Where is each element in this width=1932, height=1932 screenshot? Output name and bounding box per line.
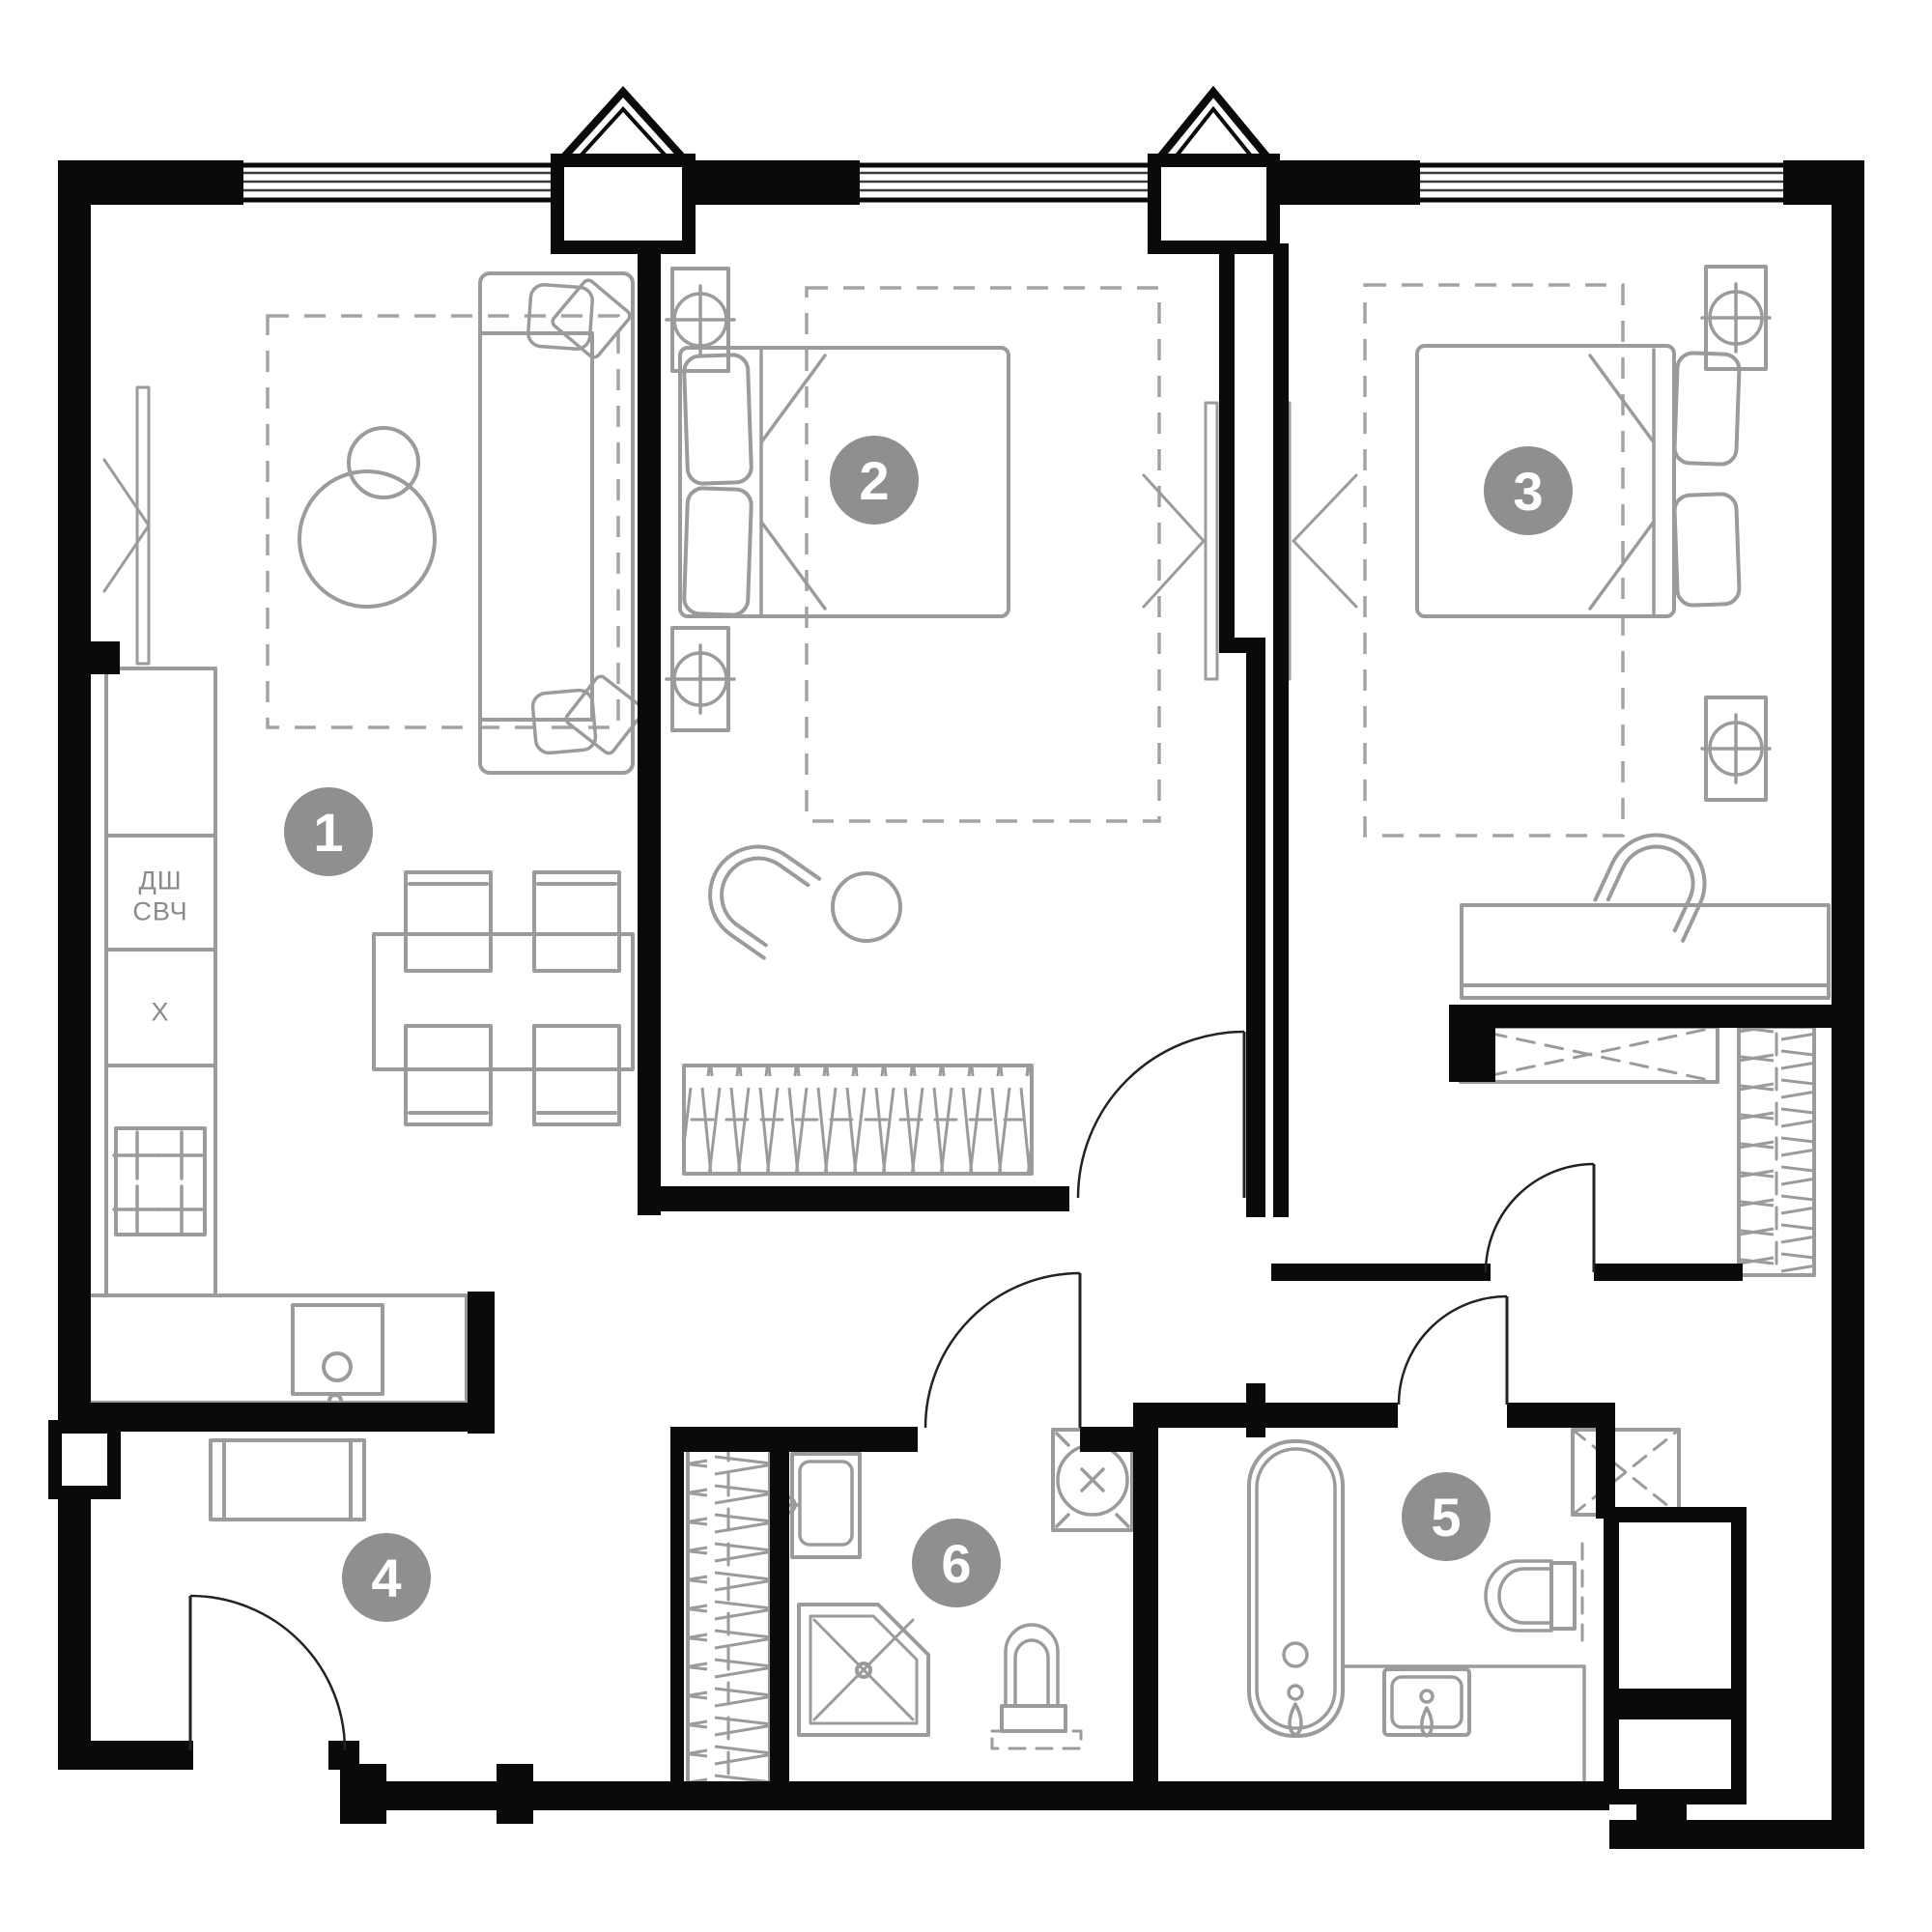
windows: [68, 165, 1864, 200]
room-badge-1: 1: [284, 787, 373, 876]
floor-mat: [992, 1731, 1081, 1748]
sink-icon: [1343, 1666, 1584, 1781]
wardrobe-hangers-icon: [684, 1065, 1032, 1174]
room-badge-3: 3: [1484, 446, 1573, 535]
bench: [211, 1440, 364, 1520]
closet-shelf-icon: [1573, 1430, 1679, 1515]
pillow: [684, 355, 753, 484]
desk-chair: [1595, 819, 1720, 941]
tv-arrow-icon: [104, 387, 149, 664]
rug-bedroom-2: [1365, 285, 1623, 836]
kitchen-counter-bottom: [89, 1295, 467, 1406]
toilet-icon: [1486, 1561, 1575, 1631]
sink-icon: [779, 1454, 860, 1557]
desk: [1462, 905, 1829, 998]
radiator-vent-icon: [667, 269, 734, 730]
room-badge-2: 2: [830, 436, 919, 525]
kitchen-label-sink: X: [151, 998, 169, 1028]
closet-shelf-icon: [1461, 1027, 1718, 1082]
side-table: [833, 873, 900, 941]
shower-icon: [799, 1605, 928, 1735]
door-swing-icon: [1078, 1032, 1244, 1198]
toilet-icon: [1002, 1625, 1065, 1731]
bathtub-icon: [1249, 1441, 1343, 1736]
kitchen-label-dishwasher: ДШ: [138, 867, 182, 896]
bay-window-icon: [557, 92, 1273, 247]
dining-chairs: [406, 872, 619, 1124]
armchair: [691, 828, 819, 958]
kitchen-label-microwave: СВЧ: [132, 897, 187, 927]
wardrobe-hangers-icon: [1739, 1027, 1814, 1275]
bed-icon: [1417, 346, 1740, 616]
rug-living-room: [268, 316, 618, 727]
door-swing-icon: [1486, 1164, 1594, 1272]
dining-table: [374, 934, 633, 1069]
ventilation-shaft: [55, 1427, 1739, 1797]
room-badge-6: 6: [912, 1519, 1001, 1607]
door-swing-icon: [1399, 1296, 1507, 1405]
tv-arrow-icon: [1144, 403, 1217, 679]
pillow: [1674, 494, 1740, 606]
room-badge-4: 4: [342, 1533, 431, 1622]
sofa-icon: [480, 273, 645, 773]
room-badge-5: 5: [1402, 1472, 1491, 1561]
tv-arrow-icon: [1278, 403, 1356, 679]
kitchen-counter: [106, 668, 215, 1295]
wardrobe-hangers-icon: [688, 1432, 770, 1785]
rug-bedroom-1: [807, 288, 1159, 821]
floor-plan-drawing: [0, 0, 1932, 1932]
side-table: [349, 428, 418, 497]
pillow: [684, 488, 752, 615]
door-swing-icon: [190, 1596, 345, 1750]
stove-burners-icon: [114, 1128, 205, 1235]
door-swing-icon: [925, 1273, 1080, 1428]
floor-plan: 1 2 3 4 5 6 ДШ СВЧ X: [0, 0, 1932, 1932]
